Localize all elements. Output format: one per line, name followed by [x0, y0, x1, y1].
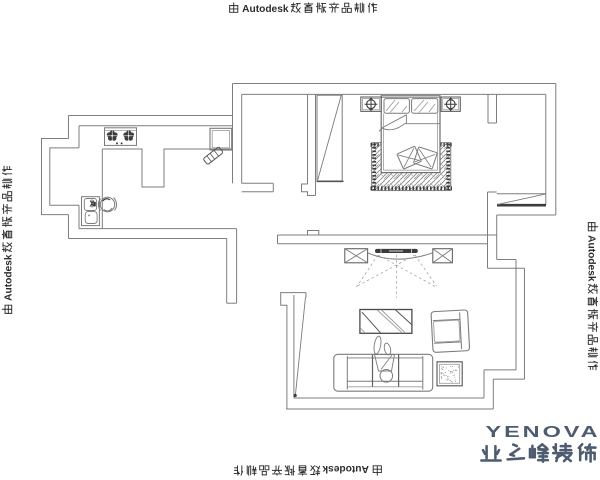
svg-text:YENOVA: YENOVA	[486, 424, 600, 441]
svg-text:Autodesk: Autodesk	[242, 4, 289, 15]
svg-text:Autodesk: Autodesk	[3, 254, 14, 301]
svg-text:Autodesk: Autodesk	[586, 235, 597, 282]
svg-text:Autodesk: Autodesk	[322, 463, 369, 474]
